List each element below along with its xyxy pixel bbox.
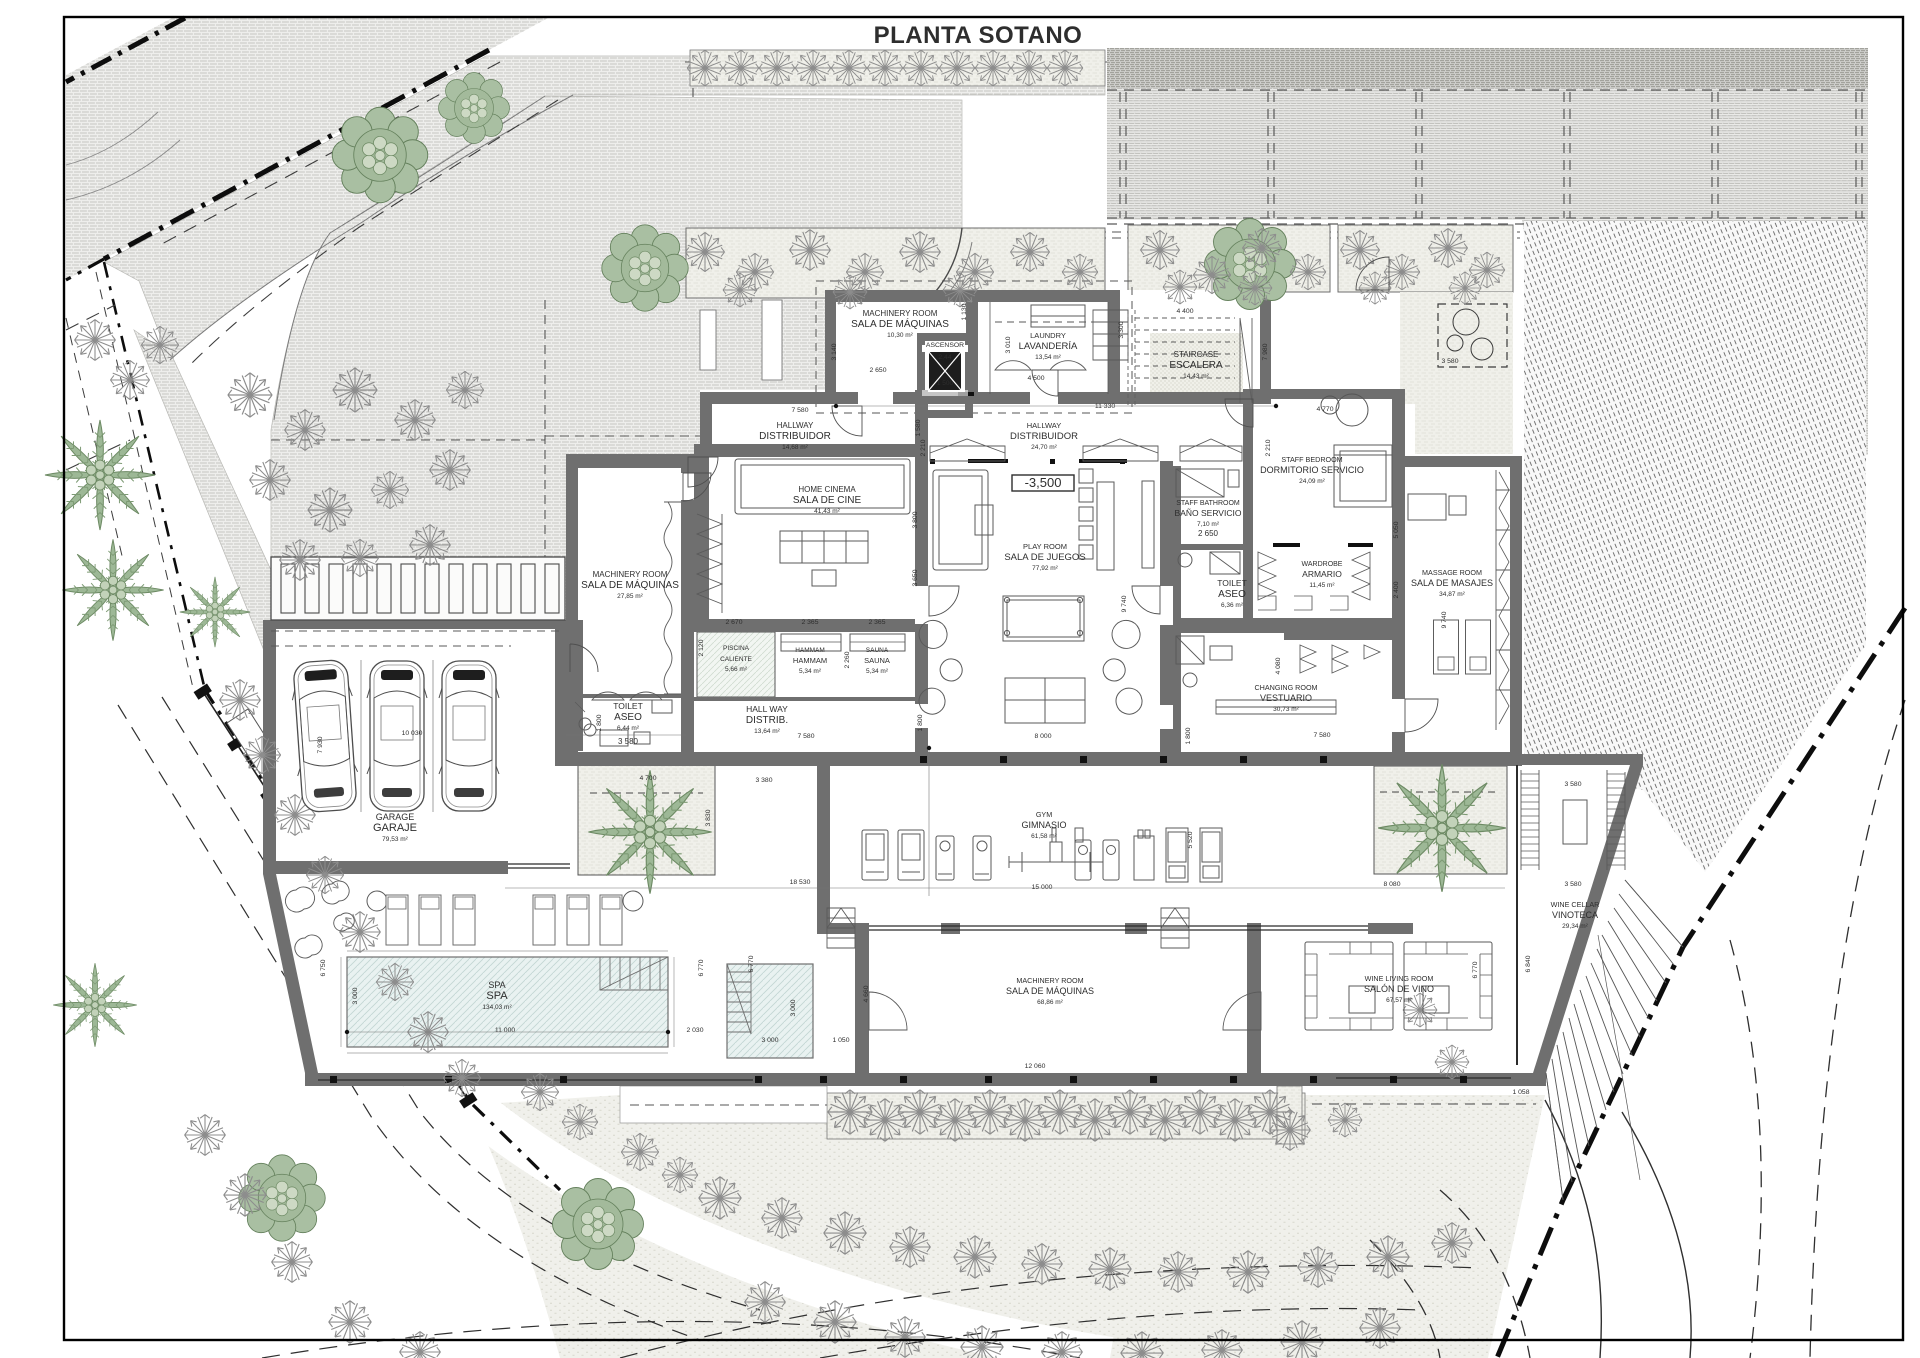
- svg-text:7,10 m²: 7,10 m²: [1197, 521, 1220, 528]
- svg-text:HALLWAY: HALLWAY: [1027, 421, 1061, 430]
- svg-text:3 380: 3 380: [755, 777, 772, 784]
- svg-text:34,87 m²: 34,87 m²: [1439, 591, 1465, 598]
- svg-text:6,36 m²: 6,36 m²: [1221, 602, 1244, 609]
- svg-text:DISTRIBUIDOR: DISTRIBUIDOR: [759, 431, 831, 442]
- svg-text:7 580: 7 580: [791, 407, 808, 414]
- svg-text:3 650: 3 650: [912, 569, 919, 586]
- svg-text:6 840: 6 840: [1525, 955, 1532, 972]
- svg-text:1 058: 1 058: [1512, 1089, 1529, 1096]
- svg-text:2 210: 2 210: [1265, 439, 1272, 456]
- svg-text:MACHINERY ROOM: MACHINERY ROOM: [1016, 976, 1083, 985]
- svg-text:12 060: 12 060: [1025, 1063, 1046, 1070]
- svg-text:77,92 m²: 77,92 m²: [1032, 565, 1058, 572]
- svg-text:134,03 m²: 134,03 m²: [482, 1004, 512, 1011]
- svg-text:10 030: 10 030: [402, 730, 423, 737]
- svg-text:4 700: 4 700: [639, 775, 656, 782]
- svg-text:4 660: 4 660: [863, 985, 870, 1002]
- svg-text:VINOTECA: VINOTECA: [1552, 910, 1598, 920]
- svg-text:3 000: 3 000: [761, 1037, 778, 1044]
- svg-text:SALA DE MÁQUINAS: SALA DE MÁQUINAS: [851, 317, 949, 330]
- svg-text:2,44: 2,44: [938, 354, 951, 361]
- svg-text:41,43 m²: 41,43 m²: [814, 508, 840, 515]
- svg-text:6 770: 6 770: [1472, 961, 1479, 978]
- svg-text:1 500: 1 500: [937, 380, 954, 387]
- svg-text:CHANGING ROOM: CHANGING ROOM: [1254, 683, 1317, 692]
- svg-text:PLANTA SOTANO: PLANTA SOTANO: [874, 22, 1083, 49]
- svg-text:WINE CELLAR: WINE CELLAR: [1551, 900, 1600, 909]
- svg-text:STAIRCASE: STAIRCASE: [1174, 350, 1219, 359]
- svg-text:1 050: 1 050: [832, 1037, 849, 1044]
- svg-text:2 030: 2 030: [686, 1027, 703, 1034]
- svg-text:61,58 m²: 61,58 m²: [1031, 833, 1057, 840]
- svg-text:SALA DE MÁQUINAS: SALA DE MÁQUINAS: [581, 578, 679, 591]
- svg-text:4 770: 4 770: [1316, 406, 1333, 413]
- svg-text:6 770: 6 770: [748, 955, 755, 972]
- svg-text:5,34 m²: 5,34 m²: [799, 668, 822, 675]
- svg-text:GIMNASIO: GIMNASIO: [1021, 820, 1066, 830]
- svg-text:LAUNDRY: LAUNDRY: [1030, 331, 1066, 340]
- svg-text:GARAGE: GARAGE: [376, 812, 415, 822]
- svg-text:WINE LIVING ROOM: WINE LIVING ROOM: [1365, 974, 1434, 983]
- svg-text:7 980: 7 980: [1262, 343, 1269, 360]
- svg-text:3 000: 3 000: [352, 987, 359, 1004]
- svg-text:MASSAGE ROOM: MASSAGE ROOM: [1422, 568, 1482, 577]
- svg-text:3 010: 3 010: [1005, 336, 1012, 353]
- svg-text:3 300: 3 300: [1118, 321, 1125, 338]
- svg-text:30,73 m²: 30,73 m²: [1273, 706, 1299, 713]
- svg-text:10,30 m²: 10,30 m²: [887, 332, 913, 339]
- svg-text:2 650: 2 650: [869, 367, 886, 374]
- svg-text:ASEO: ASEO: [1218, 589, 1246, 600]
- svg-text:7 580: 7 580: [1313, 732, 1330, 739]
- svg-text:2 210: 2 210: [920, 439, 927, 456]
- svg-text:3 580: 3 580: [1441, 358, 1458, 365]
- svg-text:18 530: 18 530: [790, 879, 811, 886]
- svg-text:9 740: 9 740: [1441, 611, 1448, 628]
- svg-text:67,57 m²: 67,57 m²: [1386, 997, 1412, 1004]
- svg-text:11,45 m²: 11,45 m²: [1309, 582, 1335, 589]
- svg-text:1 130: 1 130: [961, 303, 968, 320]
- svg-text:MACHINERY ROOM: MACHINERY ROOM: [593, 570, 668, 579]
- svg-text:DORMITORIO SERVICIO: DORMITORIO SERVICIO: [1260, 465, 1364, 475]
- svg-text:5,66 m²: 5,66 m²: [725, 666, 748, 673]
- svg-text:3 830: 3 830: [705, 809, 712, 826]
- svg-text:3 140: 3 140: [831, 343, 838, 360]
- svg-text:SAUNA: SAUNA: [864, 656, 890, 665]
- svg-text:SALA DE MÁQUINAS: SALA DE MÁQUINAS: [1006, 986, 1094, 996]
- svg-text:24,09 m²: 24,09 m²: [1299, 478, 1325, 485]
- svg-text:2 365: 2 365: [868, 619, 885, 626]
- svg-text:6 770: 6 770: [698, 959, 705, 976]
- svg-text:6,44 m²: 6,44 m²: [617, 725, 640, 732]
- svg-text:3 580: 3 580: [618, 737, 639, 746]
- svg-text:WARDROBE: WARDROBE: [1302, 561, 1343, 568]
- svg-text:1 800: 1 800: [917, 714, 924, 731]
- svg-text:11 330: 11 330: [1095, 403, 1116, 410]
- svg-text:HAMMAM: HAMMAM: [793, 656, 827, 665]
- svg-text:SALA DE CINE: SALA DE CINE: [793, 495, 862, 506]
- svg-text:2 260: 2 260: [844, 651, 851, 668]
- svg-text:SAUNA: SAUNA: [866, 647, 889, 654]
- svg-text:HALLWAY: HALLWAY: [777, 421, 814, 430]
- svg-text:SALA DE MASAJES: SALA DE MASAJES: [1411, 578, 1493, 588]
- svg-text:14,43 m²: 14,43 m²: [1183, 373, 1209, 380]
- svg-text:7 930: 7 930: [317, 736, 324, 753]
- svg-text:ARMARIO: ARMARIO: [1302, 569, 1342, 579]
- svg-text:HOME CINEMA: HOME CINEMA: [798, 485, 856, 494]
- svg-text:ESCALERA: ESCALERA: [1169, 360, 1223, 371]
- svg-text:LAVANDERÍA: LAVANDERÍA: [1019, 341, 1078, 352]
- svg-text:SALA DE JUEGOS: SALA DE JUEGOS: [1004, 552, 1085, 563]
- svg-text:TOILET: TOILET: [1217, 578, 1247, 588]
- svg-text:3 580: 3 580: [1564, 881, 1581, 888]
- svg-text:MACHINERY ROOM: MACHINERY ROOM: [863, 309, 938, 318]
- svg-text:PLAY ROOM: PLAY ROOM: [1023, 542, 1067, 551]
- svg-text:STAFF BATHROOM: STAFF BATHROOM: [1176, 500, 1240, 507]
- svg-text:3 000: 3 000: [790, 999, 797, 1016]
- svg-text:8 000: 8 000: [1034, 733, 1051, 740]
- svg-text:6 750: 6 750: [320, 959, 327, 976]
- svg-text:2 120: 2 120: [698, 639, 705, 656]
- svg-text:2 670: 2 670: [725, 619, 742, 626]
- svg-text:7 580: 7 580: [797, 733, 814, 740]
- svg-text:SALÓN DE VINO: SALÓN DE VINO: [1364, 984, 1434, 994]
- svg-text:STAFF BEDROOM: STAFF BEDROOM: [1281, 455, 1342, 464]
- svg-text:1 580: 1 580: [915, 419, 922, 436]
- svg-text:PISCINA: PISCINA: [723, 645, 750, 652]
- svg-text:13,54 m²: 13,54 m²: [1035, 354, 1061, 361]
- svg-text:GYM: GYM: [1036, 810, 1052, 819]
- svg-text:4 400: 4 400: [1176, 308, 1193, 315]
- svg-text:15 000: 15 000: [1032, 884, 1053, 891]
- svg-text:ASCENSOR: ASCENSOR: [926, 342, 964, 349]
- svg-text:27,85 m²: 27,85 m²: [617, 593, 643, 600]
- svg-text:5 520: 5 520: [1187, 831, 1194, 848]
- svg-text:68,86 m²: 68,86 m²: [1037, 999, 1063, 1006]
- svg-text:ASEO: ASEO: [614, 712, 642, 723]
- svg-text:5 050: 5 050: [1393, 521, 1400, 538]
- svg-text:CALIENTE: CALIENTE: [720, 656, 752, 663]
- svg-text:HALL WAY: HALL WAY: [746, 704, 788, 714]
- svg-text:1 800: 1 800: [1185, 727, 1192, 744]
- svg-text:29,34 m²: 29,34 m²: [1562, 923, 1588, 930]
- svg-text:VESTUARIO: VESTUARIO: [1260, 693, 1312, 703]
- svg-text:5,34 m²: 5,34 m²: [866, 668, 889, 675]
- svg-text:2 400: 2 400: [1393, 581, 1400, 598]
- svg-text:DISTRIB.: DISTRIB.: [746, 715, 788, 726]
- svg-text:9 740: 9 740: [1121, 595, 1128, 612]
- svg-text:24,70 m²: 24,70 m²: [1031, 444, 1057, 451]
- svg-text:DISTRIBUIDOR: DISTRIBUIDOR: [1010, 431, 1078, 442]
- svg-text:GARAJE: GARAJE: [373, 822, 417, 834]
- svg-text:4 080: 4 080: [1275, 657, 1282, 674]
- svg-text:1 800: 1 800: [596, 714, 603, 731]
- svg-text:13,64 m²: 13,64 m²: [754, 728, 780, 735]
- svg-text:11 000: 11 000: [495, 1027, 516, 1034]
- svg-text:2 650: 2 650: [1198, 529, 1219, 538]
- svg-text:14,68 m²: 14,68 m²: [782, 444, 808, 451]
- svg-text:3 580: 3 580: [1564, 781, 1581, 788]
- svg-text:2 365: 2 365: [801, 619, 818, 626]
- svg-text:TOILET: TOILET: [613, 701, 643, 711]
- svg-text:8 080: 8 080: [1383, 881, 1400, 888]
- svg-text:HAMMAM: HAMMAM: [795, 647, 825, 654]
- svg-text:SPA: SPA: [486, 990, 508, 1002]
- svg-text:BAÑO SERVICIO: BAÑO SERVICIO: [1175, 508, 1242, 518]
- svg-text:-3,500: -3,500: [1025, 475, 1062, 490]
- svg-text:79,53 m²: 79,53 m²: [382, 836, 408, 843]
- svg-text:3 800: 3 800: [912, 511, 919, 528]
- svg-text:4 500: 4 500: [1027, 375, 1044, 382]
- svg-text:SPA: SPA: [488, 980, 505, 990]
